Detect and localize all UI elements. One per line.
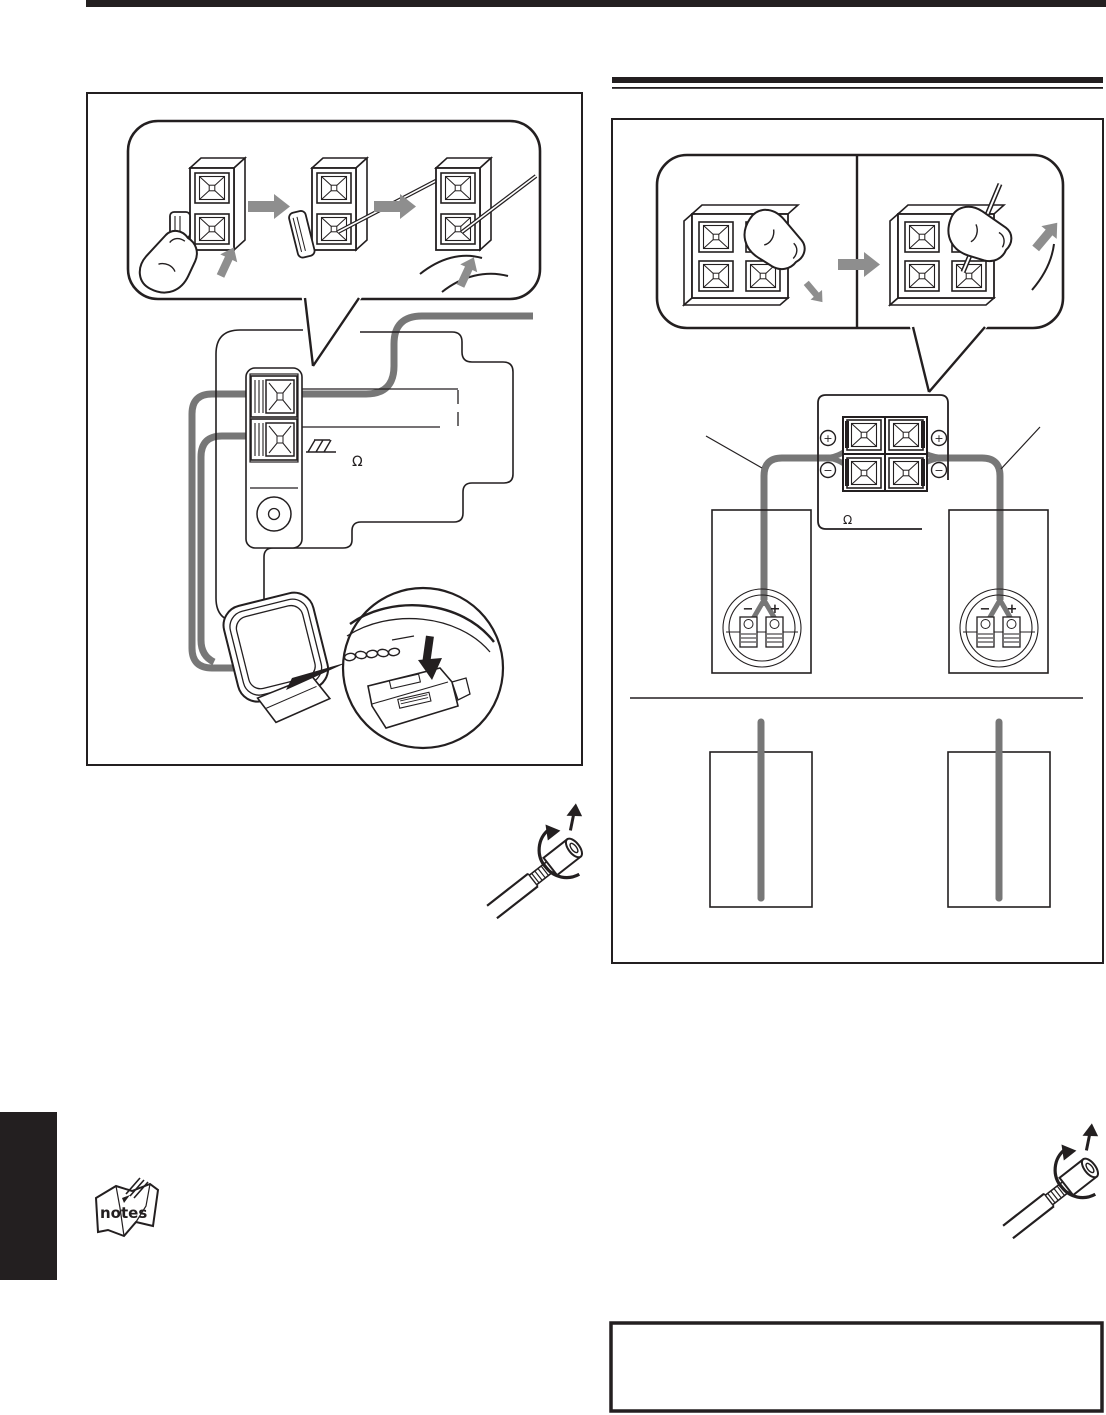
plus-symbol: + bbox=[823, 432, 832, 445]
minus-symbol: − bbox=[823, 464, 832, 477]
antenna-base-inset-detail bbox=[343, 588, 503, 748]
speaker-plus-label: + bbox=[770, 602, 781, 617]
section-heading-rule-thin bbox=[612, 87, 1103, 89]
speaker-plus-label: + bbox=[1007, 602, 1018, 617]
am-antenna-terminal-block bbox=[246, 368, 302, 548]
bottom-note-box bbox=[611, 1323, 1102, 1411]
speaker-impedance-label: Ω bbox=[843, 513, 852, 527]
notes-label: notes bbox=[100, 1204, 147, 1222]
section-side-tab bbox=[0, 1112, 57, 1280]
am-terminal-plus bbox=[251, 376, 297, 417]
plus-symbol: + bbox=[934, 432, 943, 445]
top-page-rule bbox=[86, 0, 1106, 7]
right-figure-speaker-connection: Ω + − + − bbox=[612, 119, 1103, 963]
left-figure-antenna-connection: Ω bbox=[87, 93, 582, 765]
speaker-terminal-block bbox=[843, 417, 927, 491]
speaker-minus-label: − bbox=[980, 602, 991, 617]
speaker-minus-label: − bbox=[743, 602, 754, 617]
minus-symbol: − bbox=[934, 464, 943, 477]
page-artwork: Ω bbox=[0, 0, 1106, 1415]
manual-page: Ω bbox=[0, 0, 1106, 1415]
am-terminal-minus bbox=[251, 419, 297, 460]
section-heading-rule-thick bbox=[612, 77, 1103, 83]
notes-icon: notes bbox=[96, 1178, 158, 1236]
strip-twist-wire-icon bbox=[470, 802, 612, 931]
strip-twist-wire-icon bbox=[986, 1122, 1106, 1251]
antenna-impedance-label: Ω bbox=[352, 454, 363, 470]
